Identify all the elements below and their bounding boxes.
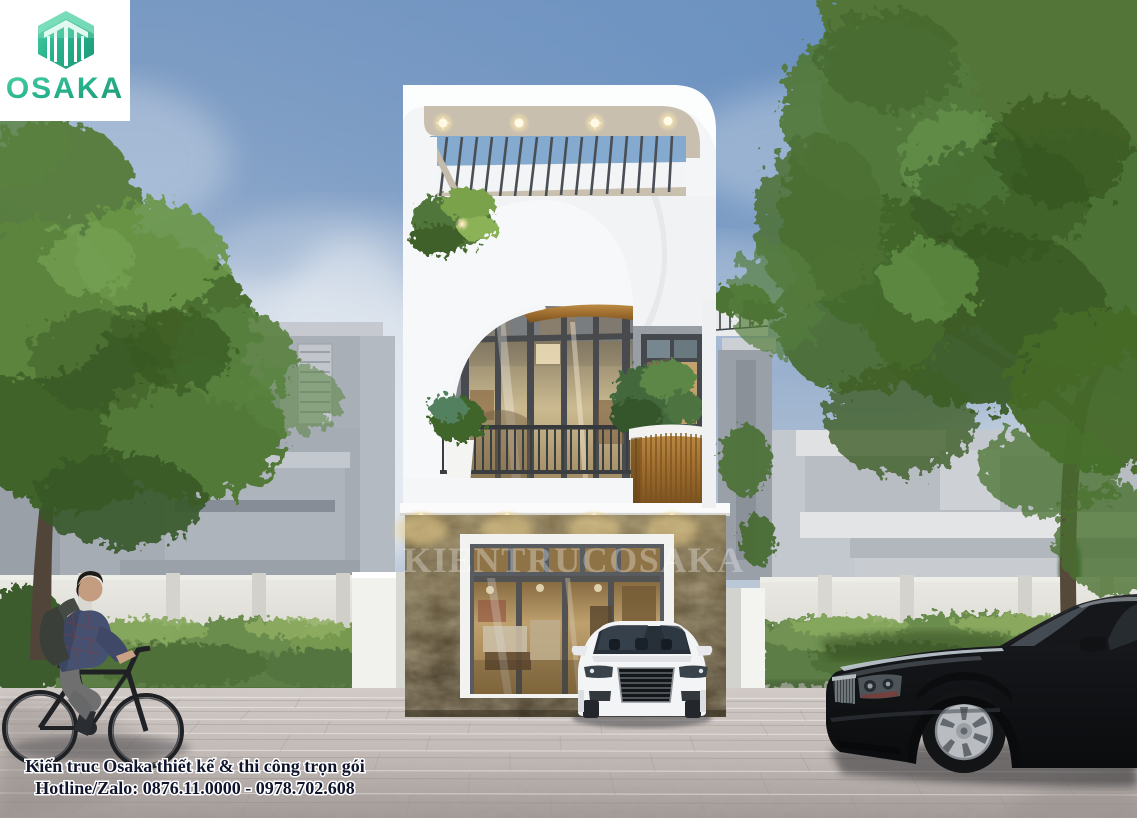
svg-text:Kiến truc Osaka thiết kế & thi: Kiến truc Osaka thiết kế & thi công trọn… bbox=[25, 756, 365, 776]
svg-text:Hotline/Zalo: 0876.11.0000 - 0: Hotline/Zalo: 0876.11.0000 - 0978.702.60… bbox=[35, 778, 355, 798]
svg-text:OSAKA: OSAKA bbox=[6, 72, 124, 105]
svg-text:KIENTRUCOSAKA: KIENTRUCOSAKA bbox=[403, 540, 745, 580]
